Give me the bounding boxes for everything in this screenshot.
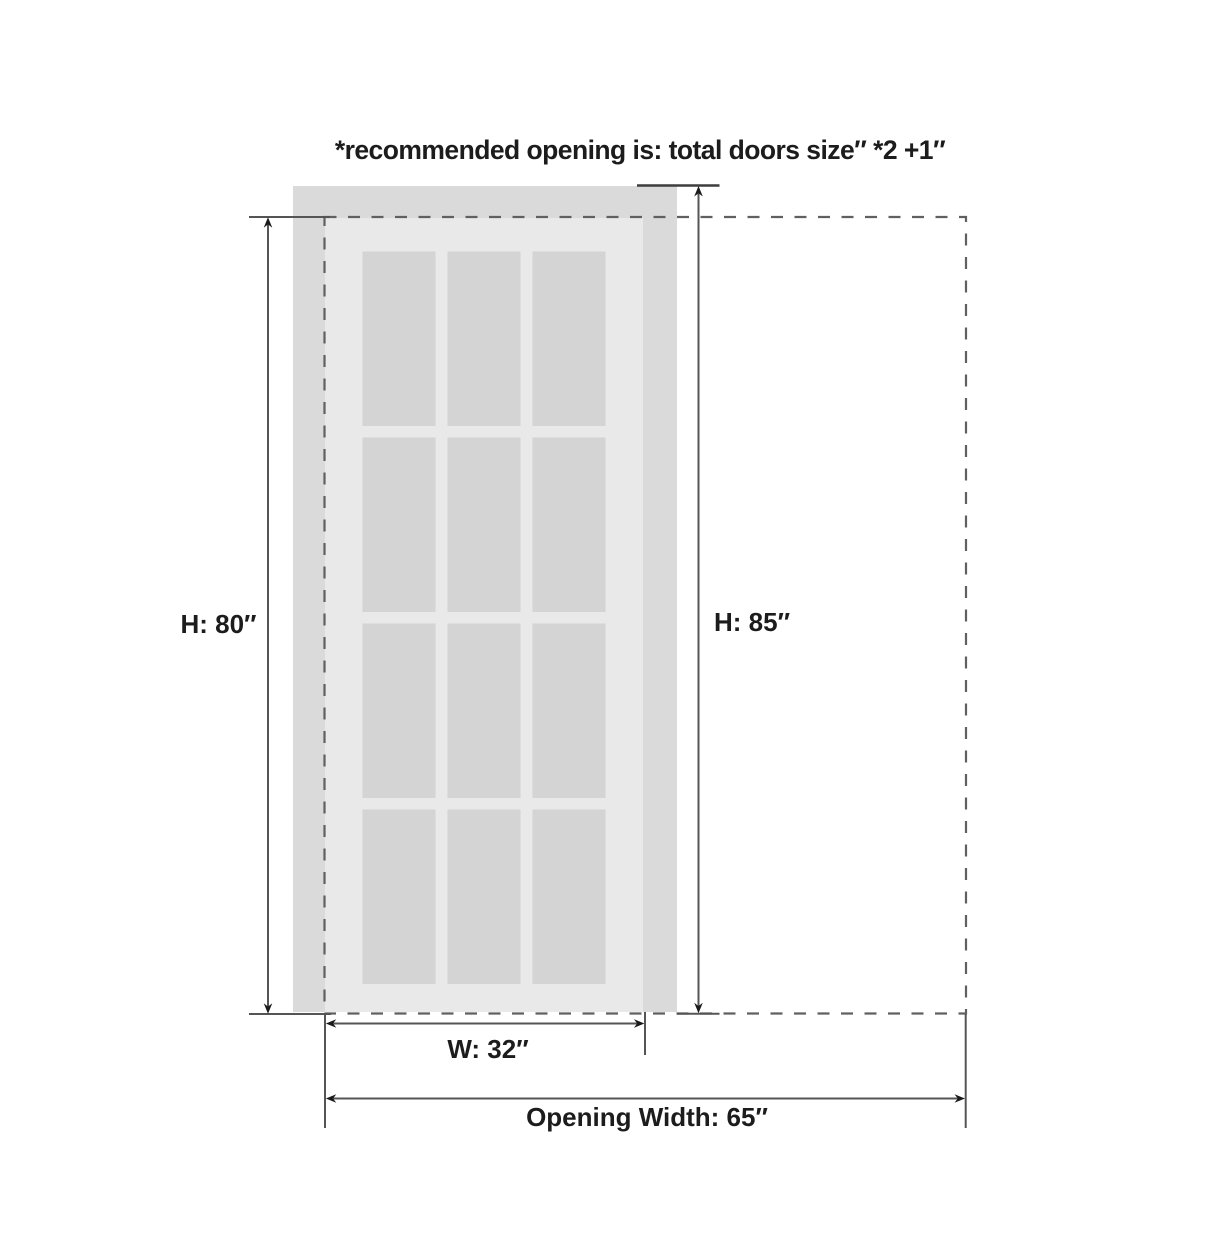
svg-text:H: 85″: H: 85″ <box>714 607 790 637</box>
svg-text:W: 32″: W: 32″ <box>447 1034 528 1064</box>
svg-text:H: 80″: H: 80″ <box>180 609 256 639</box>
svg-text:*recommended opening is: total: *recommended opening is: total doors siz… <box>335 135 946 165</box>
svg-text:Opening Width: 65″: Opening Width: 65″ <box>526 1102 768 1132</box>
